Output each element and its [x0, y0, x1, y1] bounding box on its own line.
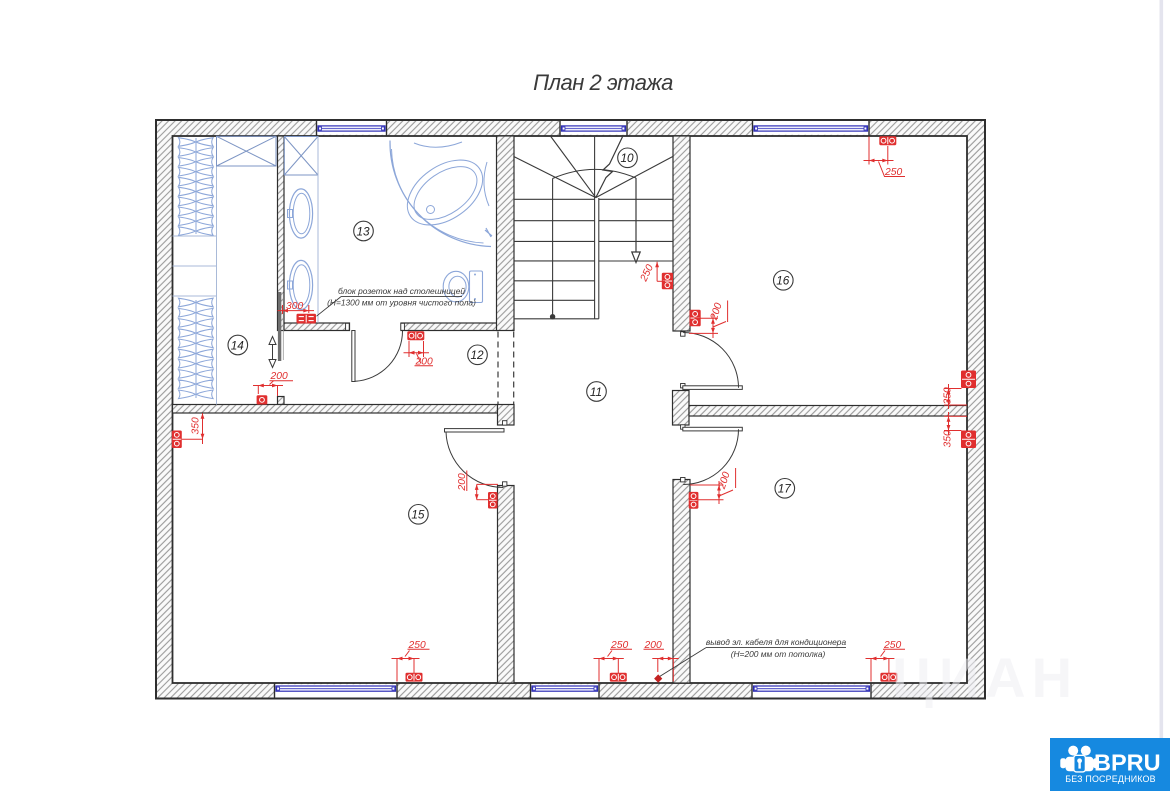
svg-text:вывод эл. кабеля для кондицион: вывод эл. кабеля для кондиционера	[706, 637, 847, 647]
svg-text:200: 200	[457, 473, 468, 491]
svg-text:(Н=1300 мм от уровня чистого п: (Н=1300 мм от уровня чистого пола)	[327, 298, 476, 308]
svg-text:350: 350	[943, 430, 954, 447]
svg-text:10: 10	[620, 151, 634, 165]
svg-text:350: 350	[943, 387, 954, 404]
svg-text:16: 16	[776, 274, 790, 288]
svg-text:200: 200	[270, 371, 288, 382]
svg-text:300: 300	[286, 301, 303, 312]
svg-text:12: 12	[470, 348, 484, 362]
svg-text:14: 14	[231, 338, 245, 352]
svg-text:ЦИАН: ЦИАН	[892, 646, 1078, 709]
svg-text:17: 17	[778, 482, 792, 496]
svg-text:250: 250	[884, 167, 902, 178]
svg-text:BPRU: BPRU	[1094, 750, 1161, 776]
svg-text:(Н=200 мм от потолка): (Н=200 мм от потолка)	[731, 649, 826, 659]
svg-text:250: 250	[610, 640, 628, 651]
svg-text:11: 11	[590, 385, 602, 399]
svg-text:250: 250	[408, 640, 426, 651]
svg-text:15: 15	[411, 508, 425, 522]
svg-text:200: 200	[415, 356, 433, 367]
svg-text:План 2 этажа: План 2 этажа	[533, 70, 673, 95]
svg-text:350: 350	[191, 417, 202, 434]
svg-text:блок розеток над столешницей: блок розеток над столешницей	[338, 286, 465, 296]
svg-text:200: 200	[644, 640, 662, 651]
svg-text:13: 13	[356, 224, 370, 238]
svg-text:БЕЗ ПОСРЕДНИКОВ: БЕЗ ПОСРЕДНИКОВ	[1065, 774, 1156, 784]
